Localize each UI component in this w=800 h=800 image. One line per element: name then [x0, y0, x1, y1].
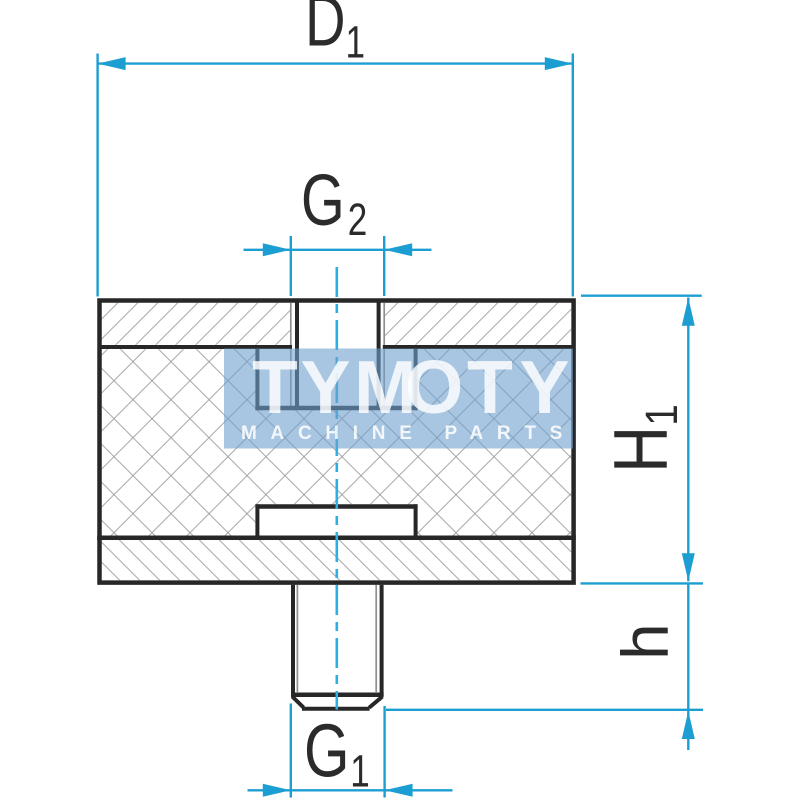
svg-text:TYMOTY: TYMOTY	[252, 345, 570, 429]
svg-text:h: h	[608, 623, 682, 660]
svg-text:MACHINE PARTS: MACHINE PARTS	[241, 423, 576, 444]
